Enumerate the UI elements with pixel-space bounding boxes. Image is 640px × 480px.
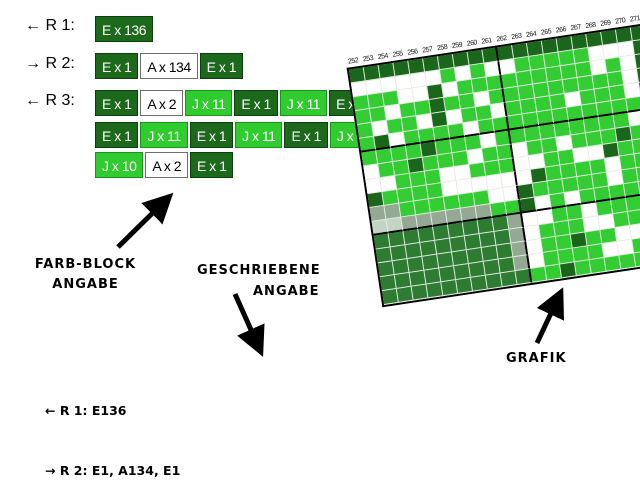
grid-column-number: 269 bbox=[597, 17, 613, 30]
grid-column-number: 254 bbox=[375, 50, 391, 63]
color-block: E x 1 bbox=[284, 122, 327, 148]
grid-column-number: 265 bbox=[538, 26, 554, 39]
written-line-r2: → R 2: E1, A134, E1 bbox=[45, 461, 544, 480]
grid-cell bbox=[630, 124, 640, 140]
grid-cell bbox=[635, 53, 640, 69]
grid-column-number: 261 bbox=[479, 35, 495, 48]
color-block: J x 11 bbox=[185, 90, 232, 116]
row-label-r1: ← R 1: bbox=[25, 17, 75, 35]
grid-cell bbox=[634, 251, 640, 267]
block-line-r1: E x 136 bbox=[95, 16, 153, 42]
grid-cell bbox=[630, 224, 640, 240]
block-line-r3c: J x 10A x 2E x 1 bbox=[95, 152, 233, 178]
grid-column-number: 263 bbox=[508, 30, 524, 43]
grid-cell bbox=[633, 39, 640, 55]
row-label-r3: ← R 3: bbox=[25, 92, 75, 110]
block-line-r3a: E x 1A x 2J x 11E x 1J x 11E x 1 bbox=[95, 90, 372, 116]
row-label-r2: → R 2: bbox=[25, 55, 75, 73]
block-line-r2: E x 1A x 134E x 1 bbox=[95, 53, 243, 79]
grid-column-number: 262 bbox=[493, 33, 509, 46]
written-line-r1: ← R 1: E136 bbox=[45, 401, 544, 421]
geschriebene-label-line2: ANGABE bbox=[253, 284, 319, 299]
color-block: E x 1 bbox=[234, 90, 277, 116]
geschriebene-label-line1: GESCHRIEBENE bbox=[197, 263, 321, 278]
color-block: J x 11 bbox=[140, 122, 187, 148]
block-line-r3b: E x 1J x 11E x 1J x 11E x 1J x 11 bbox=[95, 122, 377, 148]
grid-cell bbox=[628, 111, 640, 127]
grid-column-number: 258 bbox=[434, 41, 450, 54]
grid-column-number: 257 bbox=[419, 44, 435, 57]
color-block: E x 1 bbox=[95, 122, 138, 148]
grid-cell bbox=[628, 210, 640, 226]
grid-column-number: 266 bbox=[553, 24, 569, 37]
grid-column-number: 259 bbox=[449, 39, 465, 52]
color-block: E x 1 bbox=[190, 122, 233, 148]
grid-column-number: 256 bbox=[404, 46, 420, 59]
color-block: A x 134 bbox=[140, 53, 197, 79]
color-block: J x 11 bbox=[235, 122, 282, 148]
color-block: J x 10 bbox=[95, 152, 143, 178]
grid-column-number: 267 bbox=[568, 22, 584, 35]
color-block: A x 2 bbox=[145, 152, 188, 178]
grid-column-number: 270 bbox=[612, 15, 628, 28]
color-block: E x 1 bbox=[190, 152, 233, 178]
color-block: J x 11 bbox=[280, 90, 327, 116]
grid-cell bbox=[632, 237, 640, 253]
grid-cell bbox=[632, 138, 640, 154]
farb-block-label-line2: ANGABE bbox=[33, 277, 138, 292]
color-block: E x 1 bbox=[95, 90, 138, 116]
grid-cells bbox=[347, 23, 640, 307]
color-block: E x 1 bbox=[200, 53, 243, 79]
grid-column-number: 253 bbox=[360, 53, 376, 66]
farb-block-arrow bbox=[118, 198, 168, 247]
grid-column-number: 255 bbox=[390, 48, 406, 61]
grid-column-number: 252 bbox=[345, 55, 361, 68]
pattern-grid: 2522532542552562572582592602612622632642… bbox=[345, 12, 640, 307]
knitting-pattern-sheet: ← R 1: → R 2: ← R 3: E x 136 E x 1A x 13… bbox=[0, 0, 640, 480]
grid-column-number: 268 bbox=[582, 19, 598, 32]
grid-column-number: 264 bbox=[523, 28, 539, 41]
grid-column-number: 260 bbox=[464, 37, 480, 50]
written-instructions: ← R 1: E136 → R 2: E1, A134, E1 ← R 3: E… bbox=[45, 361, 544, 480]
color-block: E x 1 bbox=[95, 53, 138, 79]
grid-cell bbox=[635, 152, 640, 168]
geschriebene-arrow bbox=[235, 294, 260, 350]
grid-column-number: 271 bbox=[627, 13, 640, 26]
color-block: E x 136 bbox=[95, 16, 153, 42]
grafik-arrow bbox=[537, 294, 560, 343]
color-block: A x 2 bbox=[140, 90, 183, 116]
farb-block-label-line1: FARB-BLOCK bbox=[33, 257, 138, 272]
grid-cell bbox=[631, 25, 640, 41]
